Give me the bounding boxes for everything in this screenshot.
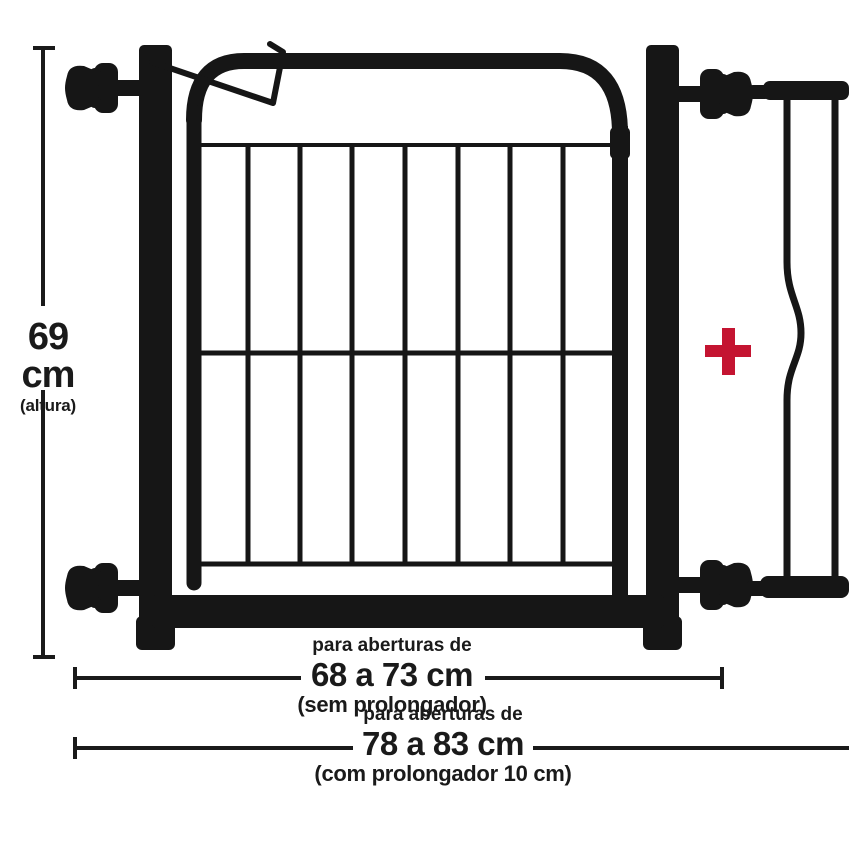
frame-left-post	[139, 45, 172, 630]
pressure-knob-top-left-icon	[65, 63, 142, 113]
pressure-knob-bottom-right-icon	[676, 560, 753, 610]
plus-icon	[705, 328, 751, 375]
frame-right-post	[646, 45, 679, 630]
pressure-knob-bottom-left-icon	[65, 563, 142, 613]
opening-2-intro: para aberturas de	[293, 705, 593, 725]
height-qualifier: (altura)	[0, 397, 96, 414]
opening-1-intro: para aberturas de	[242, 636, 542, 656]
gate-diagram: 69 cm (altura) para aberturas de 68 a 73…	[0, 0, 849, 849]
height-dimension-label: 69 cm (altura)	[0, 318, 96, 414]
frame-bottom-rail	[152, 595, 664, 628]
extension-panel	[745, 81, 849, 598]
gate-frame	[136, 45, 682, 650]
extension-wavy-bar	[787, 98, 801, 578]
opening-1-value: 68 a 73 cm	[242, 658, 542, 693]
gate-door	[194, 61, 630, 620]
opening-2-value: 78 a 83 cm	[293, 727, 593, 762]
opening-2-qualifier: (com prolongador 10 cm)	[293, 762, 593, 785]
height-value: 69 cm	[0, 318, 96, 394]
pressure-knob-top-right-icon	[676, 69, 753, 119]
opening-with-extension-label: para aberturas de 78 a 83 cm (com prolon…	[293, 705, 593, 785]
